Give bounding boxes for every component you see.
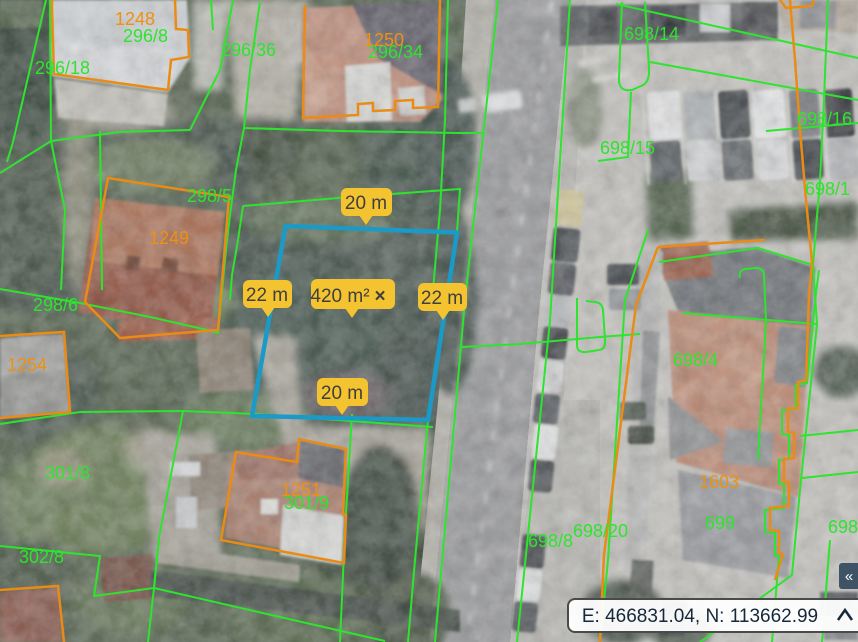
svg-text:22 m: 22 m: [421, 288, 463, 309]
svg-text:699: 699: [705, 513, 735, 533]
svg-text:22 m: 22 m: [246, 285, 288, 306]
svg-text:1248: 1248: [115, 9, 155, 29]
svg-text:E: 466831.04, N: 113662.99: E: 466831.04, N: 113662.99: [582, 606, 818, 627]
svg-text:698/8: 698/8: [528, 531, 573, 551]
svg-text:×: ×: [374, 286, 385, 307]
svg-text:1250: 1250: [364, 30, 404, 50]
svg-text:298/5: 298/5: [187, 186, 232, 206]
svg-text:698: 698: [828, 517, 858, 537]
svg-text:698/15: 698/15: [600, 138, 655, 158]
svg-text:302/8: 302/8: [19, 547, 64, 567]
svg-text:1254: 1254: [7, 355, 47, 375]
svg-text:420 m²: 420 m²: [310, 286, 369, 307]
svg-text:296/36: 296/36: [221, 40, 276, 60]
svg-text:20 m: 20 m: [345, 193, 387, 214]
svg-text:698/1: 698/1: [805, 179, 850, 199]
svg-text:698/14: 698/14: [624, 24, 679, 44]
svg-text:698/20: 698/20: [573, 521, 628, 541]
svg-text:1603: 1603: [699, 472, 739, 492]
svg-text:298/6: 298/6: [33, 295, 78, 315]
svg-text:«: «: [845, 568, 853, 585]
svg-text:698/4: 698/4: [673, 350, 718, 370]
svg-text:296/18: 296/18: [35, 58, 90, 78]
svg-text:301/8: 301/8: [45, 463, 90, 483]
svg-text:1249: 1249: [149, 228, 189, 248]
svg-text:296/8: 296/8: [123, 26, 168, 46]
svg-text:20 m: 20 m: [321, 383, 363, 404]
svg-text:1251: 1251: [281, 480, 321, 500]
svg-text:698/16: 698/16: [797, 109, 852, 129]
